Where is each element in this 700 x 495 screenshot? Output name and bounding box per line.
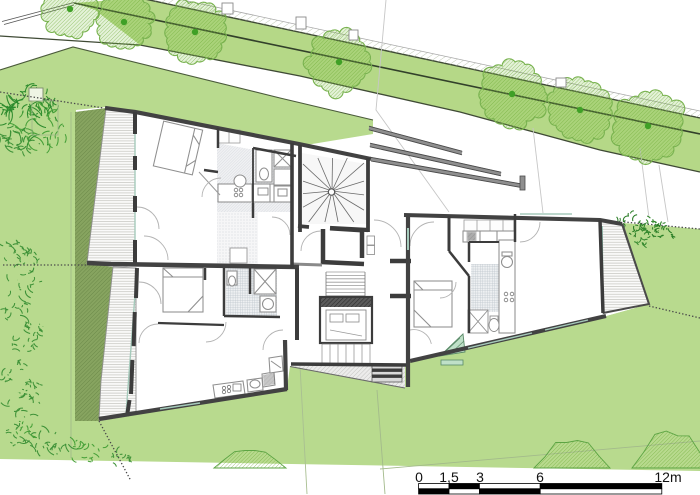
svg-text:1,5: 1,5 [439, 469, 459, 485]
svg-text:12m: 12m [654, 469, 681, 485]
svg-text:3: 3 [476, 469, 484, 485]
svg-text:0: 0 [415, 469, 423, 485]
svg-text:6: 6 [536, 469, 544, 485]
